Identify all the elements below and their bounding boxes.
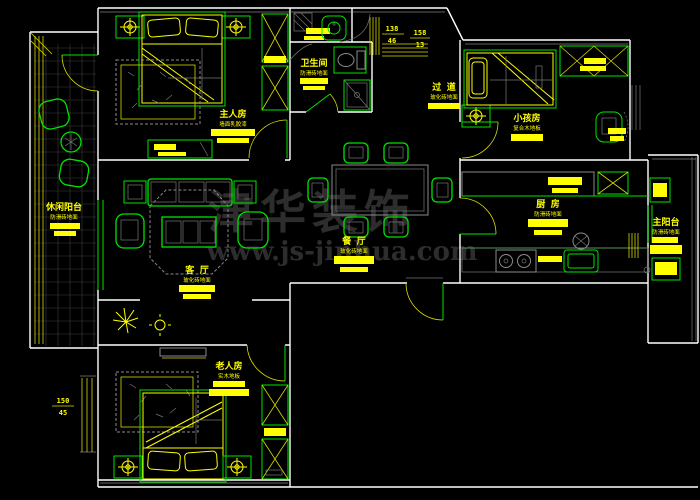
room-material: 玻化砖地面	[430, 93, 458, 101]
dimension-text: 13	[416, 41, 424, 49]
room-material: 玻化砖地面	[340, 247, 368, 255]
dimension-text: 138	[386, 25, 399, 33]
room-material: 复合木地板	[513, 124, 541, 132]
room-material: 玻化砖地面	[183, 276, 211, 284]
room-label: 主人房	[219, 108, 246, 120]
room-label: 休闲阳台	[45, 201, 82, 213]
room-material: 墙面乳胶漆	[219, 120, 247, 128]
room-label: 老人房	[214, 360, 242, 372]
room-material: 防滑砖地面	[652, 228, 680, 236]
dimension-text: 158	[414, 29, 427, 37]
floor-plan-canvas: 津华装饰 www.js-jinhua.com	[0, 0, 700, 500]
room-label: 卫生间	[300, 57, 327, 69]
room-label: 小孩房	[512, 112, 540, 124]
room-material: 实木地板	[218, 372, 241, 380]
room-material: 防滑砖地面	[534, 210, 562, 218]
room-label: 客 厅	[184, 264, 208, 276]
dimension-text: 45	[59, 409, 67, 417]
room-label: 餐 厅	[341, 235, 365, 247]
room-label: 主阳台	[652, 216, 679, 228]
room-label: 厨 房	[536, 198, 559, 210]
room-material: 防滑砖地面	[50, 213, 78, 221]
room-material: 防滑砖地面	[300, 69, 328, 77]
dimension-text: 150	[57, 397, 70, 405]
floor-plan-drawing: 津华装饰 www.js-jinhua.com	[0, 0, 700, 500]
dimension-text: 46	[388, 37, 396, 45]
room-label: 过 道	[432, 81, 455, 93]
